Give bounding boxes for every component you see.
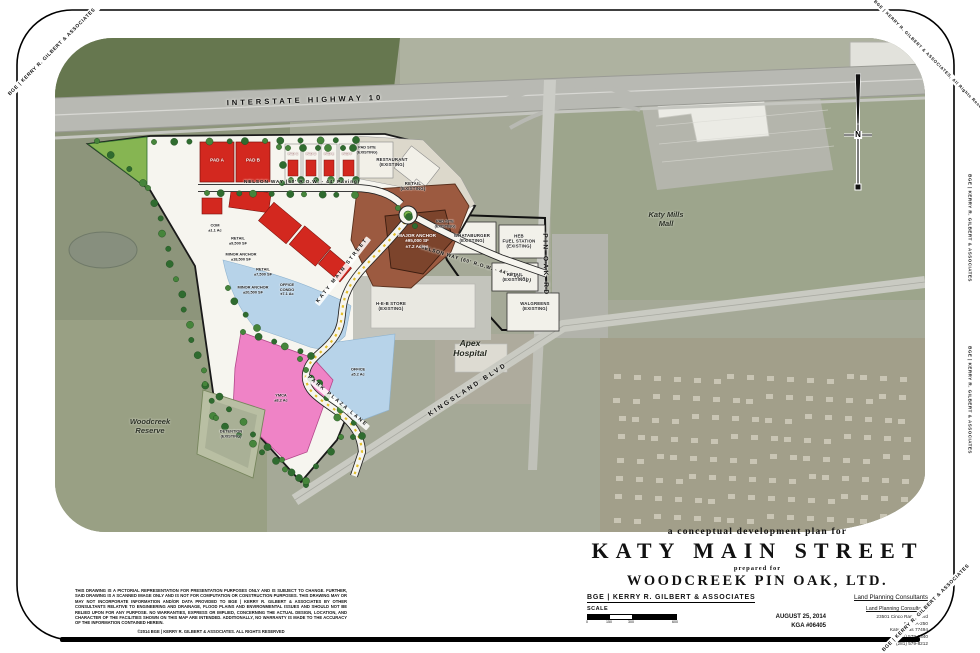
- scale-tick: 600: [672, 620, 678, 624]
- label-pad-f: PAD F: [342, 152, 352, 156]
- bottom-border-bar: [60, 637, 920, 642]
- edge-watermark-right-lower: BGE | KERRY R. GILBERT & ASSOCIATES: [968, 346, 973, 454]
- job-number: KGA #06405: [687, 622, 826, 631]
- scale-segment: [588, 615, 610, 619]
- label-north: N: [854, 131, 862, 139]
- label-walgreens: WALGREENS(EXISTING): [520, 301, 550, 311]
- label-pad-a: PAD A: [210, 157, 224, 162]
- copyright-line: ©2014 BGE | KERRY R. GILBERT & ASSOCIATE…: [75, 629, 347, 634]
- label-interstate-highway-10: INTERSTATE HIGHWAY 10: [227, 94, 384, 108]
- label-pad-site-existing-top: PAD SITE(EXISTING): [357, 145, 378, 154]
- scale-segment: [632, 615, 676, 619]
- plan-date: AUGUST 25, 2014: [687, 613, 826, 622]
- scale-tick: 150: [606, 620, 612, 624]
- consultant-type: Land Planning Consultants: [854, 594, 928, 601]
- label-major-anchor: MAJOR ANCHOR±95,000 SF±7.2 Acres: [398, 233, 436, 249]
- label-comm: COM±1.1 Ac: [208, 223, 221, 232]
- label-retail-2: RETAIL±7,500 SF: [254, 267, 272, 276]
- label-whataburger: WHATABURGER(EXISTING): [454, 233, 490, 243]
- map-labels-layer: INTERSTATE HIGHWAY 10NELSON WAY (60' R.O…: [55, 38, 925, 532]
- edge-watermark-right-upper: BGE | KERRY R. GILBERT & ASSOCIATES: [968, 174, 973, 282]
- scale-tick: 300: [628, 620, 634, 624]
- firm-name: BGE | KERRY R. GILBERT & ASSOCIATES: [587, 594, 755, 603]
- label-minor-anchor-1: MINOR ANCHOR±18,500 SF: [226, 252, 257, 261]
- aerial-site-plan-map: INTERSTATE HIGHWAY 10NELSON WAY (60' R.O…: [55, 38, 925, 532]
- address-line: Fax (281) 579-8212: [832, 641, 928, 648]
- label-minor-anchor-2: MINOR ANCHOR±20,500 SF: [238, 285, 269, 294]
- label-restaurant-existing: RESTAURANT(EXISTING): [376, 157, 407, 167]
- label-detention: DETENTION(EXISTING): [220, 429, 242, 438]
- label-nelson-way: NELSON WAY (60' R.O.W. - 44' Paving): [244, 180, 360, 186]
- scale-tick: 0: [586, 620, 588, 624]
- disclaimer-block: THIS DRAWING IS A PICTORIAL REPRESENTATI…: [75, 588, 347, 634]
- label-park-plaza-lane: PARK PLAZA LANE: [304, 374, 370, 430]
- label-pad-site-existing-east: PAD SITE(EXISTING): [435, 219, 456, 228]
- scale-label: SCALE: [587, 606, 687, 612]
- label-pad-e: PAD E: [324, 152, 334, 156]
- label-heb-fuel-station: HEBFUEL STATION(EXISTING): [503, 233, 536, 248]
- scale-tick-labels: 0150300600: [587, 620, 675, 626]
- label-apex-hospital: ApexHospital: [453, 338, 487, 358]
- label-retail-1: RETAIL±9,500 SF: [229, 236, 247, 245]
- disclaimer-text: THIS DRAWING IS A PICTORIAL REPRESENTATI…: [75, 588, 347, 626]
- plan-sheet: INTERSTATE HIGHWAY 10NELSON WAY (60' R.O…: [0, 0, 980, 653]
- label-woodcreek-reserve: WoodcreekReserve: [130, 418, 170, 436]
- label-pad-b: PAD B: [246, 157, 260, 162]
- label-katy-main-street: KATY MAIN STREET: [315, 236, 372, 306]
- prepared-for-label: prepared for: [585, 565, 930, 572]
- label-ymca: YMCA±8.2 Ac: [274, 393, 287, 402]
- address-line: Katy, Texas 77494: [832, 627, 928, 634]
- label-pad-c: PAD C: [288, 152, 298, 156]
- client-name: WOODCREEK PIN OAK, LTD.: [585, 573, 930, 590]
- label-retail-existing-1: RETAIL(EXISTING): [503, 272, 528, 282]
- label-retail-existing-2: RETAIL(EXISTING): [401, 181, 426, 191]
- label-pad-d: PAD D: [306, 152, 316, 156]
- scale-segment: [610, 615, 632, 619]
- plan-tagline: a conceptual development plan for: [585, 527, 930, 537]
- label-katy-mills-mall: Katy MillsMall: [648, 211, 683, 229]
- label-heb-store: H-E-B STORE(EXISTING): [376, 301, 406, 311]
- label-kingsland-blvd: KINGSLAND BLVD: [427, 362, 509, 419]
- title-block: a conceptual development plan for KATY M…: [585, 527, 930, 647]
- label-pin-oak-rd: PIN OAK RD: [541, 233, 550, 296]
- plan-title: KATY MAIN STREET: [585, 538, 930, 564]
- label-office-condo: OFFICECONDO±7.1 Ac: [280, 283, 294, 297]
- consultant-type-repeat: Land Planning Consultants: [832, 606, 928, 613]
- label-office: OFFICE±5.2 Ac: [351, 367, 365, 376]
